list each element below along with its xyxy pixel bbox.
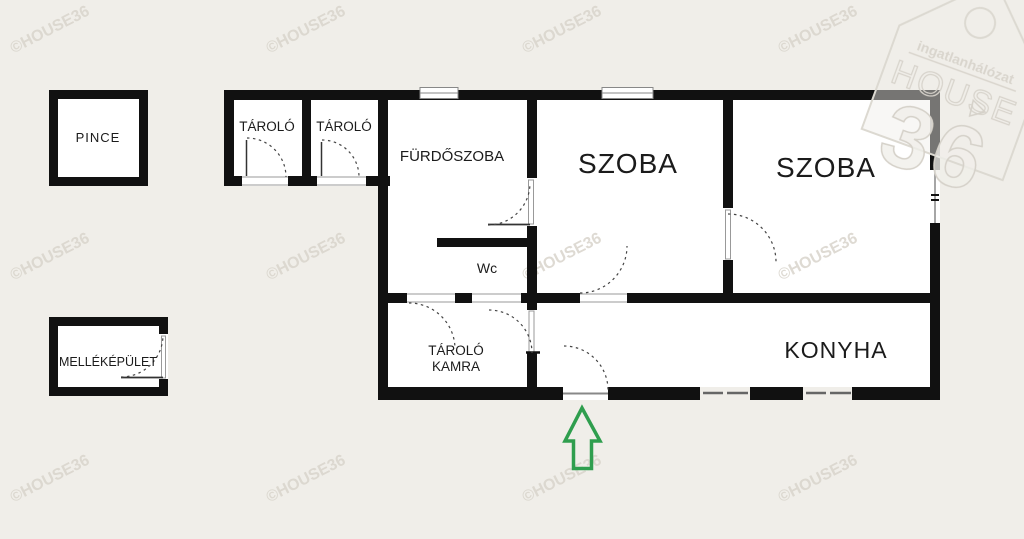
watermark-text: ©HOUSE36: [520, 3, 605, 57]
watermark-text: ©HOUSE36: [264, 452, 349, 506]
watermark-text: ©HOUSE36: [776, 452, 861, 506]
room-label-szoba-left: SZOBA: [578, 148, 678, 179]
room-label-tarolo-right: TÁROLÓ: [316, 119, 372, 134]
room-label-tarolo-kamra-1: TÁROLÓ: [428, 343, 484, 358]
floorplan-canvas: ©HOUSE36 ©HOUSE36 ©HOUSE36 ©HOUSE36 ©HOU…: [0, 0, 1024, 539]
watermark-text: ©HOUSE36: [264, 3, 349, 57]
floorplan-svg: ©HOUSE36 ©HOUSE36 ©HOUSE36 ©HOUSE36 ©HOU…: [0, 0, 1024, 539]
room-label-szoba-right: SZOBA: [776, 152, 876, 183]
watermark-text: ©HOUSE36: [8, 230, 93, 284]
room-label-tarolo-kamra-2: KAMRA: [432, 359, 480, 374]
watermark-text: ©HOUSE36: [776, 3, 861, 57]
watermark-text: ©HOUSE36: [8, 452, 93, 506]
room-label-tarolo-left: TÁROLÓ: [239, 119, 295, 134]
room-label-konyha: KONYHA: [784, 337, 887, 363]
room-label-pince: PINCE: [76, 130, 121, 145]
watermark-text: ©HOUSE36: [264, 230, 349, 284]
room-label-mellekepulet: MELLÉKÉPÜLET: [59, 354, 157, 369]
watermark-text: ©HOUSE36: [8, 3, 93, 57]
room-label-furdoszoba: FÜRDŐSZOBA: [400, 147, 504, 165]
room-label-wc: Wc: [477, 260, 497, 276]
